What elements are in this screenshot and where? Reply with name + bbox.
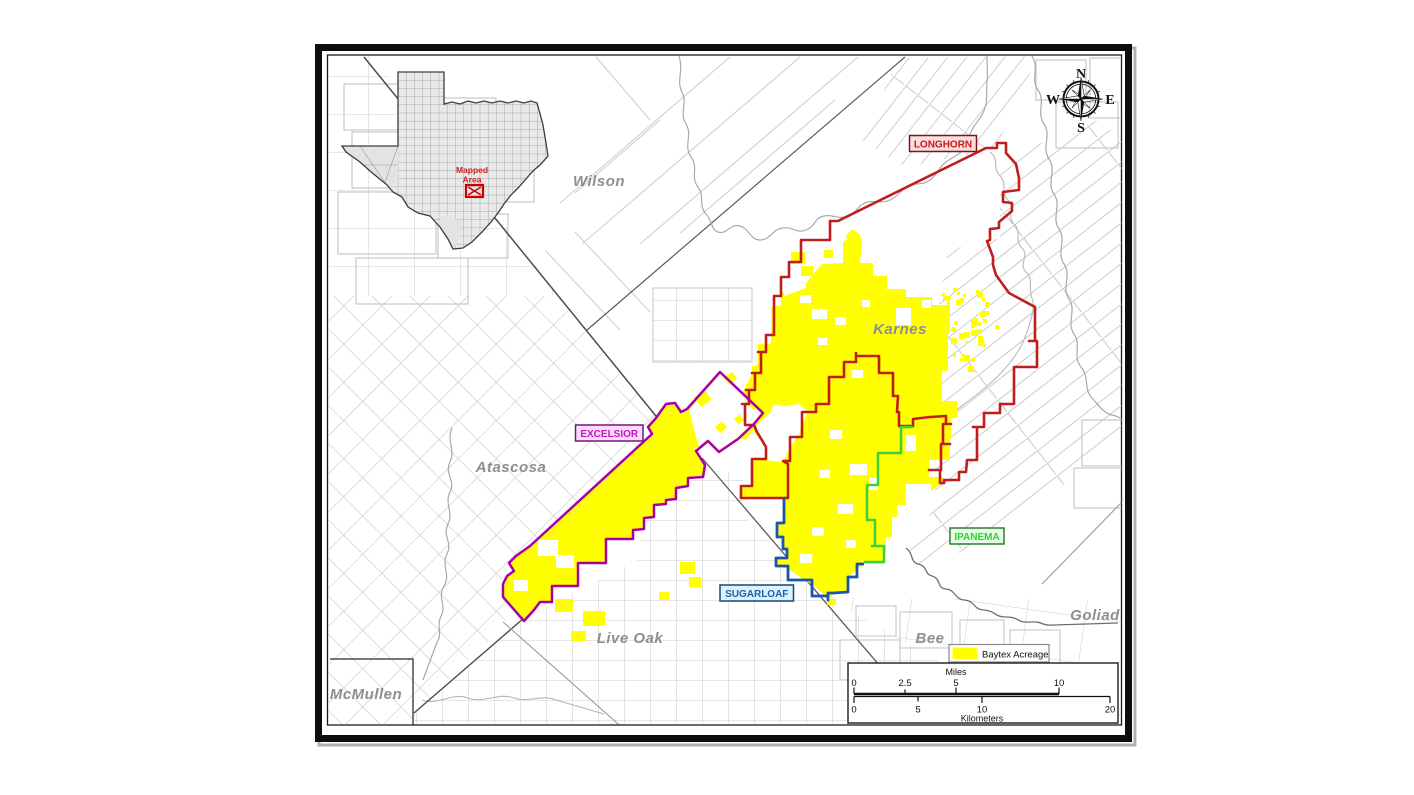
svg-text:Live Oak: Live Oak <box>597 630 664 647</box>
svg-text:5: 5 <box>953 678 958 689</box>
svg-text:Atascosa: Atascosa <box>475 459 547 476</box>
svg-text:SUGARLOAF: SUGARLOAF <box>725 589 788 600</box>
svg-text:Mapped: Mapped <box>456 165 488 175</box>
svg-text:W: W <box>1046 93 1060 108</box>
svg-text:0: 0 <box>851 678 856 689</box>
svg-text:20: 20 <box>1105 705 1116 716</box>
svg-text:N: N <box>1076 67 1086 82</box>
svg-text:Miles: Miles <box>945 667 967 677</box>
svg-text:IPANEMA: IPANEMA <box>954 532 999 543</box>
svg-text:Karnes: Karnes <box>873 321 927 338</box>
svg-text:E: E <box>1105 93 1114 108</box>
svg-text:McMullen: McMullen <box>330 686 402 703</box>
svg-text:EXCELSIOR: EXCELSIOR <box>580 429 639 440</box>
svg-text:Wilson: Wilson <box>573 173 625 190</box>
svg-text:2.5: 2.5 <box>898 678 911 689</box>
svg-text:Area: Area <box>463 175 482 185</box>
svg-text:10: 10 <box>1054 678 1065 689</box>
svg-text:Kilometers: Kilometers <box>961 714 1004 724</box>
svg-text:Bee: Bee <box>915 630 944 647</box>
svg-text:Baytex Acreage: Baytex Acreage <box>982 650 1049 661</box>
svg-text:S: S <box>1077 121 1085 136</box>
svg-text:0: 0 <box>851 705 856 716</box>
svg-text:LONGHORN: LONGHORN <box>914 140 972 151</box>
svg-text:Goliad: Goliad <box>1070 607 1120 624</box>
svg-text:5: 5 <box>915 705 920 716</box>
